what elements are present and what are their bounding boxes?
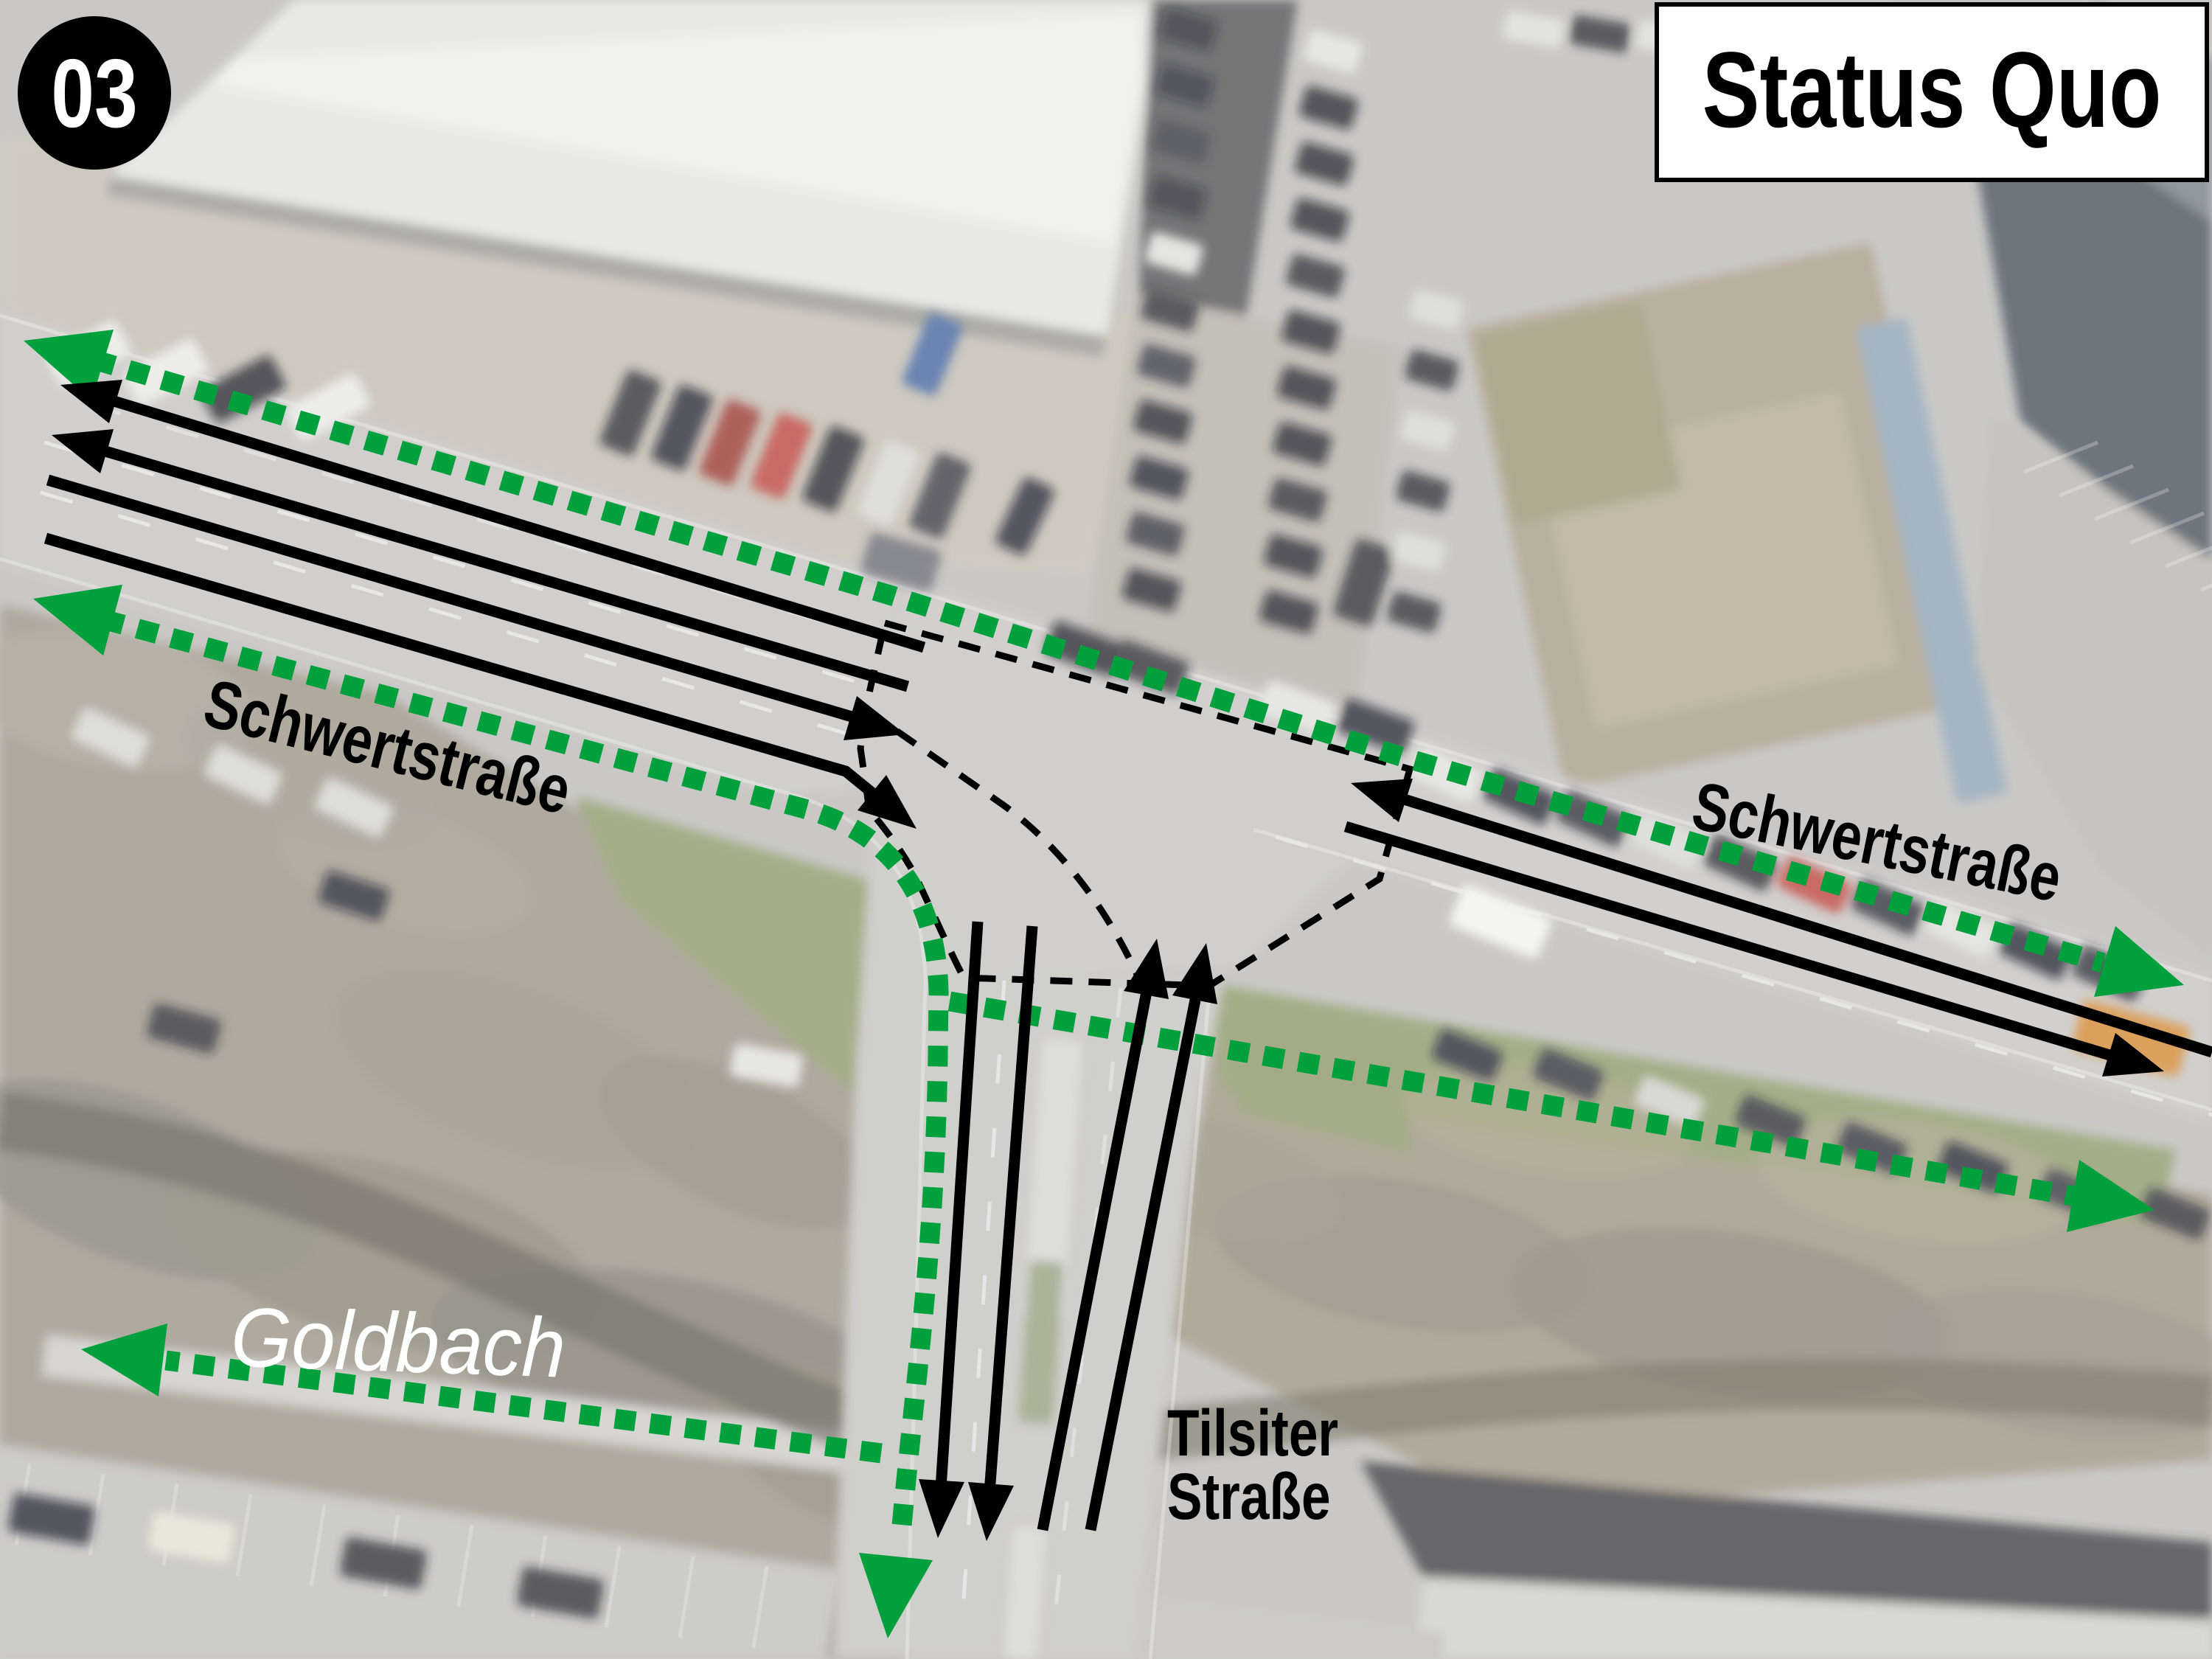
svg-text:03: 03 (51, 40, 137, 148)
svg-text:Straße: Straße (1167, 1460, 1331, 1533)
svg-text:Tilsiter: Tilsiter (1167, 1397, 1338, 1470)
svg-text:Status Quo: Status Quo (1703, 30, 2162, 150)
svg-text:Goldbach: Goldbach (229, 1290, 567, 1396)
